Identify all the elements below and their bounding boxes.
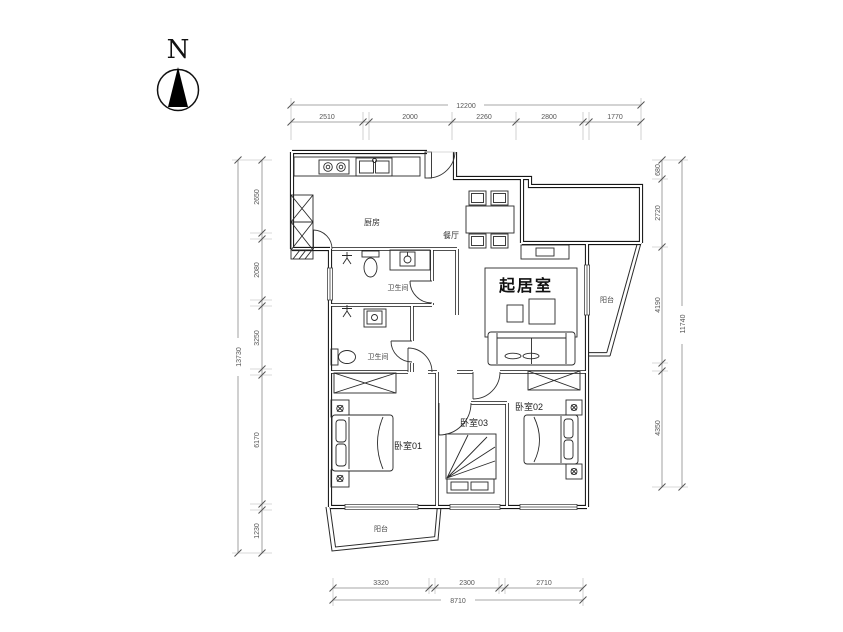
label-balcony-bottom: 阳台	[374, 524, 388, 533]
dresser-icon	[447, 479, 494, 493]
dim-bottom-seg1: 3320	[373, 580, 389, 587]
vanity-sink-icon	[390, 250, 430, 270]
sofa-icon	[488, 332, 575, 365]
nightstand-icon	[566, 464, 582, 479]
single-bed-icon	[446, 434, 496, 479]
living-room-furniture	[485, 245, 577, 365]
tv-icon	[536, 248, 554, 256]
entry-door	[425, 152, 455, 178]
dim-left-seg1: 2650	[254, 189, 261, 205]
kitchen-sink-icon	[356, 158, 392, 176]
compass-needle-icon	[168, 67, 188, 107]
label-bath-upper: 卫生间	[388, 283, 409, 292]
kitchen-door	[314, 230, 333, 249]
dining-table	[466, 206, 514, 233]
north-label: N	[167, 35, 190, 65]
label-balcony-right: 阳台	[600, 295, 614, 304]
window-bedroom1-south	[345, 504, 418, 510]
dim-right-seg4: 4350	[655, 420, 662, 436]
dim-right-seg1: 680	[655, 164, 662, 176]
dim-top: 2510 2000 2260 2800 1770 12200	[319, 101, 623, 122]
window-living-east	[584, 265, 590, 315]
window-bedroom2-south	[520, 504, 577, 510]
tv-cabinet	[521, 245, 569, 259]
toilet-icon	[362, 251, 379, 277]
vanity-sink-icon	[364, 309, 386, 327]
dim-bottom-seg3: 2710	[536, 580, 552, 587]
room-labels: 厨房 餐厅 起居室 卫生间 卫生间 卧室01 卧室02 卧室03 阳台 阳台	[364, 217, 614, 533]
nightstand-icon	[331, 470, 349, 487]
dim-right-total: 11740	[680, 314, 687, 333]
toilet-icon	[331, 349, 356, 365]
dim-left: 2650 2080 3250 6170 1230 13730	[233, 189, 261, 539]
bath-lower-door	[391, 341, 412, 362]
label-kitchen: 厨房	[364, 217, 380, 227]
coffee-table	[529, 299, 555, 324]
dim-top-total: 12200	[456, 103, 476, 110]
bedroom2-furniture	[524, 371, 582, 479]
window-bath-left	[327, 268, 333, 300]
bedroom2-door	[473, 372, 500, 399]
wardrobe-icon	[528, 371, 580, 390]
label-living: 起居室	[498, 276, 553, 295]
bedroom3-furniture	[446, 434, 496, 493]
dining-set	[466, 191, 514, 248]
north-arrow: N	[158, 35, 199, 111]
side-table	[507, 305, 523, 322]
stove-icon	[319, 160, 349, 174]
dim-top-seg4: 2800	[541, 114, 557, 121]
wardrobe-icon	[334, 373, 396, 393]
dim-top-seg5: 1770	[607, 114, 623, 121]
dim-left-total: 13730	[236, 347, 243, 367]
dim-top-seg2: 2000	[402, 114, 418, 121]
floor-plan-drawing: N 2510 2000 2260 2800 1770 1220	[0, 0, 843, 632]
floor-plan-page: N 2510 2000 2260 2800 1770 1220	[0, 0, 843, 632]
label-bath-lower: 卫生间	[368, 352, 389, 361]
double-bed-icon	[524, 415, 578, 464]
dim-bottom-total: 8710	[450, 598, 466, 605]
kitchen-fixtures	[291, 157, 420, 259]
doors	[314, 152, 501, 435]
dim-left-seg5: 1230	[254, 523, 261, 539]
nightstand-icon	[566, 400, 582, 415]
label-bedroom3: 卧室03	[460, 417, 488, 428]
label-bedroom2: 卧室02	[515, 401, 543, 412]
nightstand-icon	[331, 400, 349, 417]
dim-right-seg2: 2720	[655, 205, 662, 221]
window-bedroom3-south	[450, 504, 500, 510]
dim-bottom: 3320 2300 2710 8710	[373, 580, 552, 605]
shower-icon	[342, 252, 352, 264]
dim-top-seg1: 2510	[319, 114, 335, 121]
dim-top-seg3: 2260	[476, 114, 492, 121]
label-dining: 餐厅	[443, 231, 459, 240]
dim-left-seg3: 3250	[254, 330, 261, 346]
double-bed-icon	[332, 415, 393, 471]
kitchen-counter	[294, 157, 420, 176]
label-bedroom1: 卧室01	[394, 440, 422, 451]
dim-left-seg2: 2080	[254, 262, 261, 278]
dim-bottom-seg2: 2300	[459, 580, 475, 587]
dim-right-seg3: 4190	[655, 297, 662, 313]
bedroom1-furniture	[331, 373, 396, 487]
bathroom-upper-fixtures	[342, 250, 430, 277]
dim-left-seg4: 6170	[254, 432, 261, 448]
bath-upper-door	[410, 281, 432, 303]
extension-lines	[232, 98, 688, 606]
